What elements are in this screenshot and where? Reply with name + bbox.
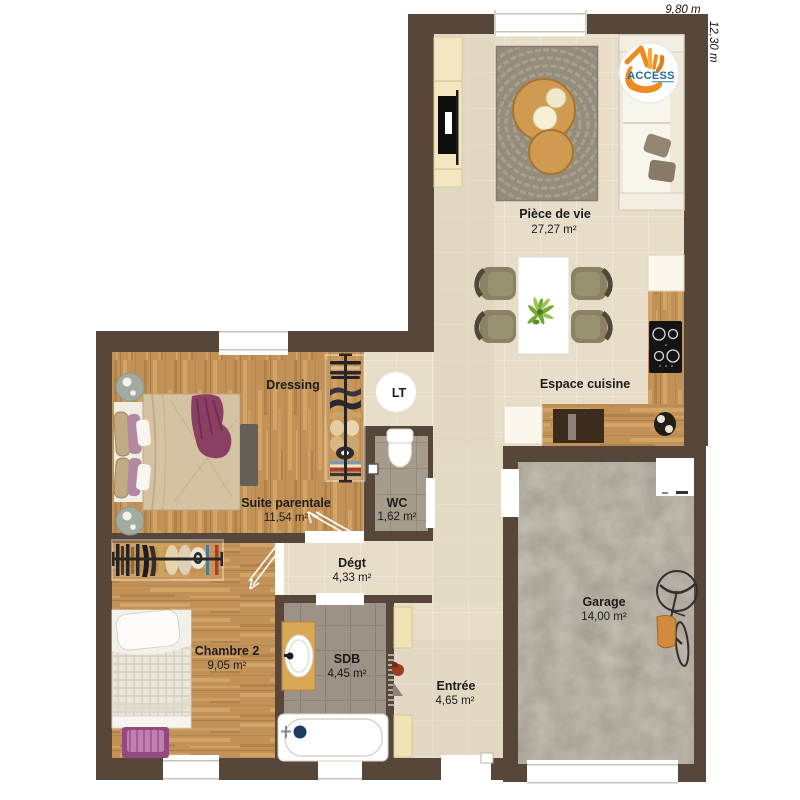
svg-text:1,62 m²: 1,62 m² [378, 511, 417, 523]
svg-text:12,30 m: 12,30 m [707, 21, 719, 63]
svg-text:27,27 m²: 27,27 m² [531, 224, 577, 236]
svg-text:Entrée: Entrée [437, 679, 476, 693]
svg-text:11,54 m²: 11,54 m² [264, 512, 309, 524]
svg-text:Espace cuisine: Espace cuisine [540, 377, 630, 391]
svg-text:LT: LT [392, 386, 407, 400]
svg-text:4,65 m²: 4,65 m² [436, 695, 475, 707]
svg-text:4,33 m²: 4,33 m² [333, 572, 372, 584]
svg-text:Chambre 2: Chambre 2 [195, 644, 260, 658]
svg-text:14,00 m²: 14,00 m² [581, 611, 627, 623]
svg-text:WC: WC [387, 496, 408, 510]
svg-text:Pièce de vie: Pièce de vie [519, 207, 591, 221]
svg-text:ACCESS: ACCESS [627, 70, 675, 82]
svg-text:9,80 m: 9,80 m [665, 4, 701, 16]
svg-text:Dressing: Dressing [266, 378, 320, 392]
svg-text:9,05 m²: 9,05 m² [208, 660, 247, 672]
svg-text:SDB: SDB [334, 652, 360, 666]
svg-text:4,45 m²: 4,45 m² [328, 668, 367, 680]
svg-text:Garage: Garage [582, 595, 625, 609]
svg-text:Suite parentale: Suite parentale [241, 496, 331, 510]
svg-text:Dégt: Dégt [338, 556, 367, 570]
